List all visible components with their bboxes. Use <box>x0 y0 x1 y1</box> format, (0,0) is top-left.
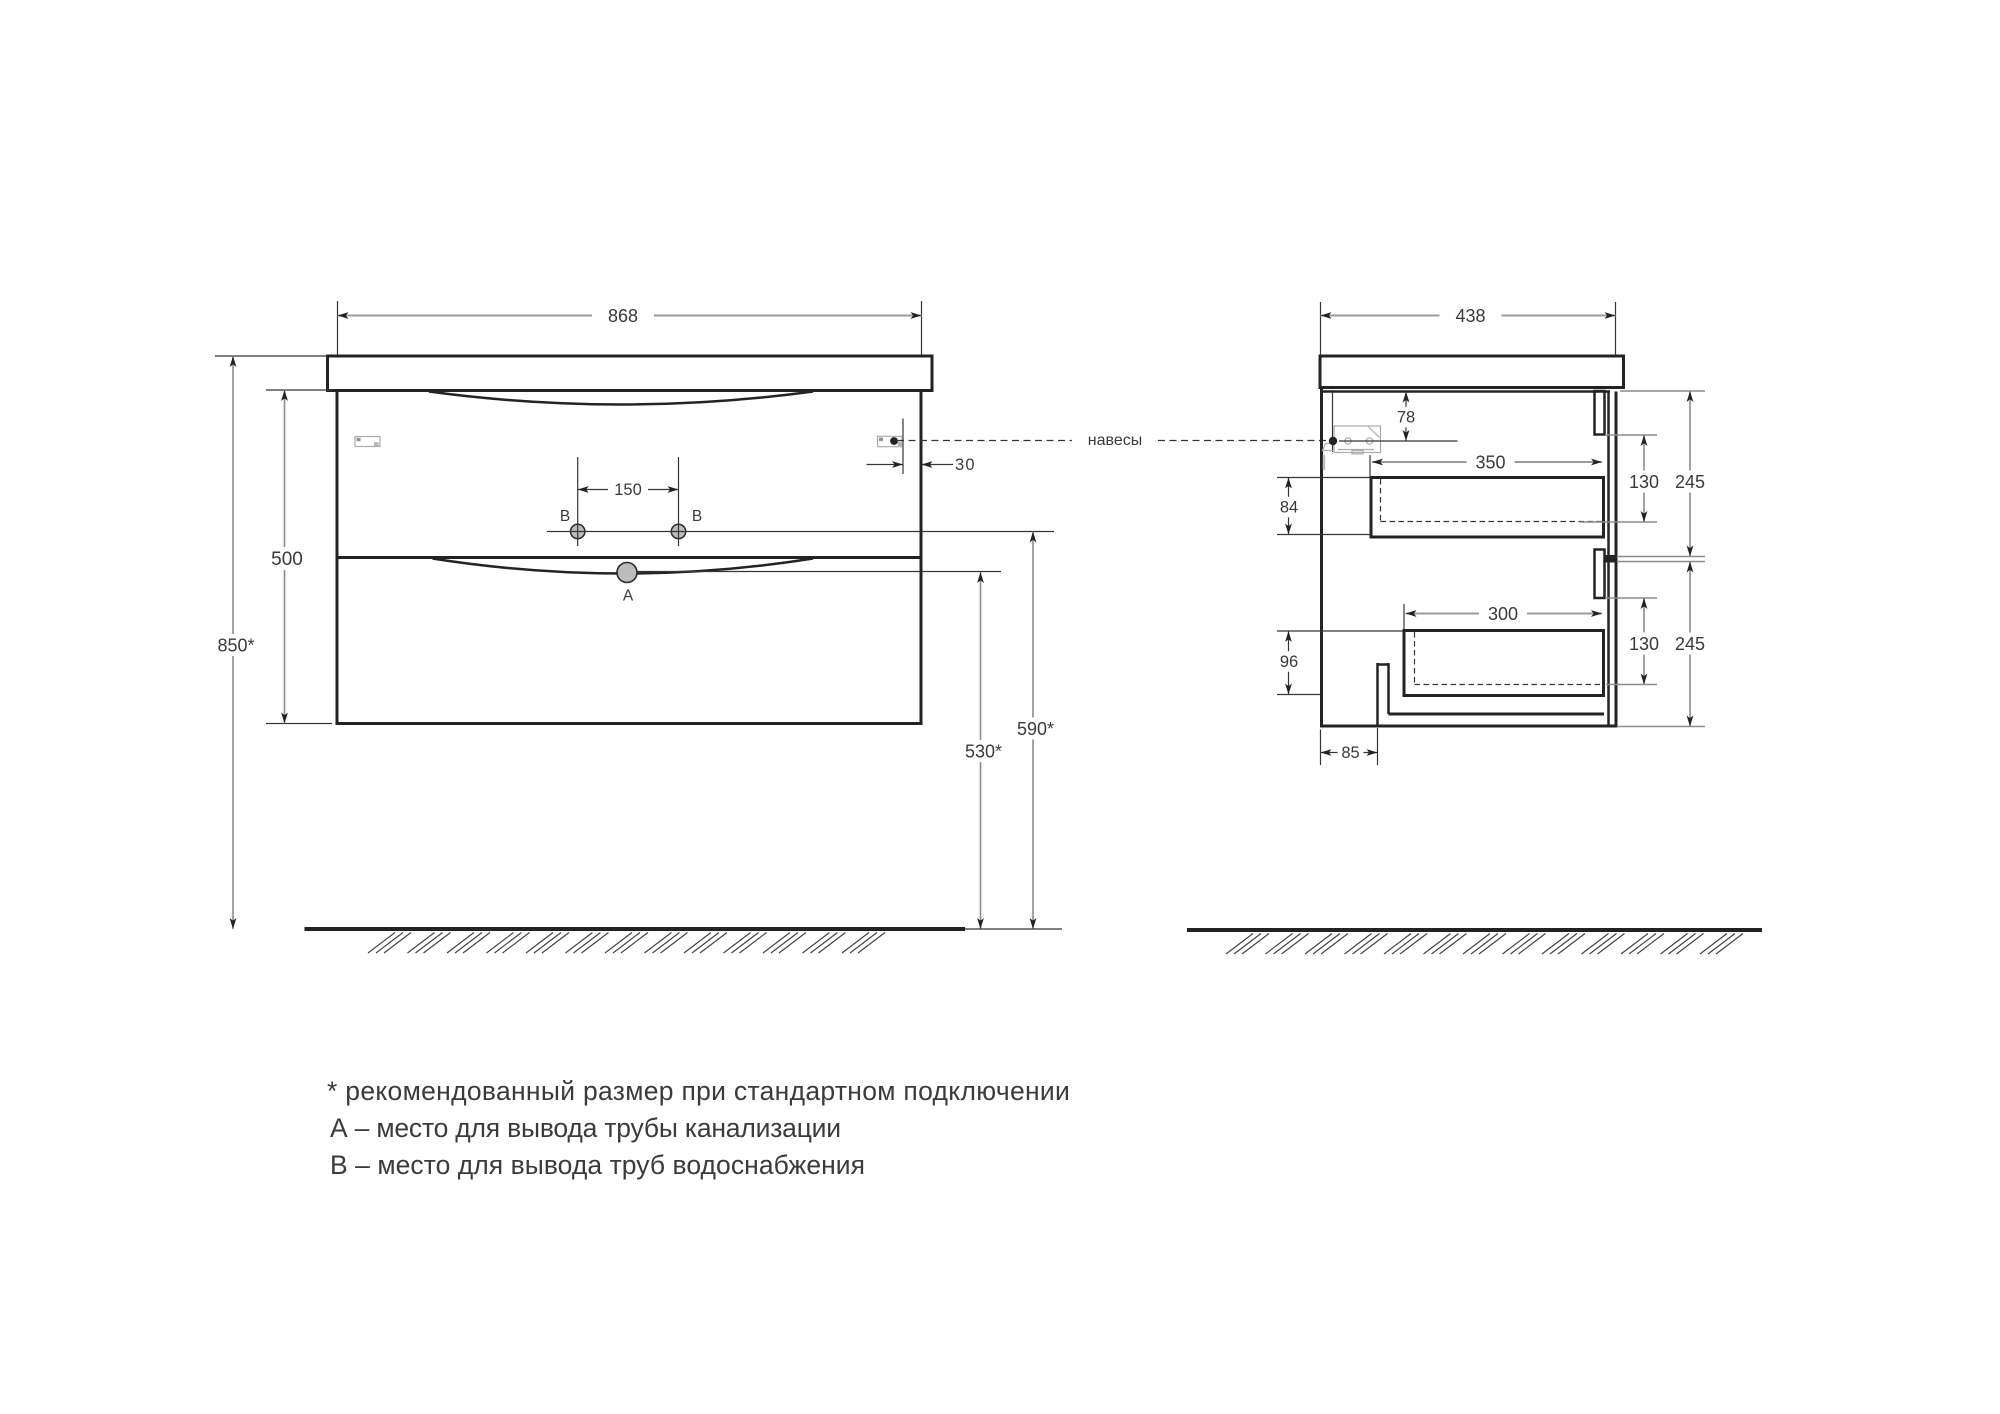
svg-text:А: А <box>623 588 634 605</box>
svg-text:438: 438 <box>1455 306 1485 326</box>
svg-text:78: 78 <box>1397 409 1415 427</box>
svg-text:В: В <box>560 508 570 525</box>
svg-text:30: 30 <box>955 456 976 474</box>
svg-text:850*: 850* <box>217 636 254 656</box>
svg-text:350: 350 <box>1475 453 1505 473</box>
svg-text:96: 96 <box>1280 653 1298 671</box>
svg-text:590*: 590* <box>1017 719 1054 739</box>
svg-text:300: 300 <box>1488 604 1518 624</box>
svg-text:245: 245 <box>1675 634 1705 654</box>
svg-text:150: 150 <box>614 481 642 499</box>
svg-text:навесы: навесы <box>1088 432 1142 449</box>
svg-text:А – место для вывода трубы кан: А – место для вывода трубы канализации <box>330 1113 841 1143</box>
svg-text:530*: 530* <box>965 742 1002 762</box>
svg-text:* рекомендованный размер при с: * рекомендованный размер при стандартном… <box>327 1076 1070 1106</box>
svg-text:245: 245 <box>1675 472 1705 492</box>
svg-text:85: 85 <box>1341 744 1359 762</box>
svg-text:В: В <box>692 508 702 525</box>
svg-text:130: 130 <box>1629 472 1659 492</box>
svg-text:868: 868 <box>608 306 638 326</box>
svg-text:500: 500 <box>271 549 303 570</box>
svg-text:130: 130 <box>1629 634 1659 654</box>
svg-text:В – место для вывода труб водо: В – место для вывода труб водоснабжения <box>330 1150 865 1180</box>
svg-text:84: 84 <box>1280 499 1298 517</box>
